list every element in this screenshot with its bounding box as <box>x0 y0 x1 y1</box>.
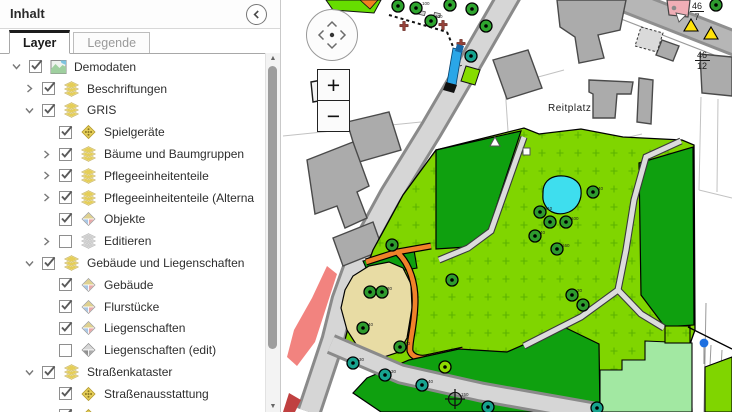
content-panel: Inhalt Layer Legende Demodaten Beschrift… <box>0 0 281 412</box>
chevron-right-icon[interactable] <box>36 147 56 161</box>
layer-label: Gebäude <box>104 278 153 292</box>
tree-row[interactable]: Pflegeeinheitenteile <box>0 165 266 187</box>
layer-checkbox[interactable] <box>42 257 55 270</box>
layer-checkbox[interactable] <box>59 300 72 313</box>
dense-green-right <box>639 147 694 327</box>
svg-text:30: 30 <box>359 357 365 362</box>
pan-down-icon[interactable] <box>328 44 337 49</box>
layer-checkbox[interactable] <box>59 322 72 335</box>
chevron-down-icon[interactable] <box>19 365 39 379</box>
tree-row[interactable]: Objekte <box>0 209 266 231</box>
red-sliver <box>283 393 301 412</box>
chevron-spacer <box>36 409 56 412</box>
layer-label: Liegenschaften (edit) <box>104 343 216 357</box>
chevron-right-icon[interactable] <box>36 169 56 183</box>
svg-text:30: 30 <box>387 286 393 291</box>
parcel-number: 46 <box>697 50 707 60</box>
polygon-layer-icon <box>78 299 98 315</box>
chevron-right-icon[interactable] <box>19 82 39 96</box>
map-label-reitplatz: Reitplatz <box>548 103 591 114</box>
layer-checkbox[interactable] <box>59 387 72 400</box>
blue-point <box>700 339 709 348</box>
layer-tree: Demodaten Beschriftungen GRISSpielgeräte… <box>0 53 266 412</box>
pan-right-icon[interactable] <box>341 31 346 40</box>
zoom-control: + − <box>317 69 350 132</box>
tab-legende[interactable]: Legende <box>73 32 150 53</box>
layer-checkbox[interactable] <box>59 169 72 182</box>
layer-label: GRIS <box>87 103 116 117</box>
svg-text:160: 160 <box>562 243 570 248</box>
scroll-down-arrow-icon[interactable]: ▼ <box>266 401 280 412</box>
pan-center-dot <box>330 33 334 37</box>
pan-control[interactable] <box>306 9 358 61</box>
layers-icon <box>78 168 98 184</box>
layer-checkbox[interactable] <box>59 344 72 357</box>
layer-label: Flurstücke <box>104 300 159 314</box>
fence-line <box>688 327 732 349</box>
tree-row[interactable]: Bäume und Baumgruppen <box>0 143 266 165</box>
layers-icon <box>61 102 81 118</box>
layer-checkbox[interactable] <box>29 60 42 73</box>
svg-text:30: 30 <box>391 369 397 374</box>
layer-label: Demodaten <box>74 60 136 74</box>
parcel-number: 7 <box>694 12 699 22</box>
tree-row[interactable]: Pflegeeinheitenteile (Alterna <box>0 187 266 209</box>
chevron-spacer <box>36 300 56 314</box>
layer-label: Pflegeeinheitenteile <box>104 169 209 183</box>
chevron-spacer <box>36 321 56 335</box>
layer-checkbox[interactable] <box>42 104 55 117</box>
point-layer-icon <box>78 408 98 412</box>
chevron-spacer <box>36 125 56 139</box>
polygon-layer-icon <box>78 277 98 293</box>
layers-icon <box>61 255 81 271</box>
layer-label: Gebäude und Liegenschaften <box>87 256 244 270</box>
svg-text:100: 100 <box>571 216 579 221</box>
svg-text:40: 40 <box>428 379 434 384</box>
tree-row[interactable] <box>0 405 266 412</box>
chevron-spacer <box>36 278 56 292</box>
chevron-right-icon[interactable] <box>36 234 56 248</box>
svg-text:100: 100 <box>435 14 443 19</box>
tree-row[interactable]: Editieren <box>0 230 266 252</box>
layer-checkbox[interactable] <box>59 148 72 161</box>
map-thumbnail-icon <box>48 59 68 75</box>
point-layer-icon <box>78 124 98 140</box>
tree-row[interactable]: Gebäude und Liegenschaften <box>0 252 266 274</box>
gis-application: Inhalt Layer Legende Demodaten Beschrift… <box>0 0 732 412</box>
zoom-out-button[interactable]: − <box>318 101 349 131</box>
pan-left-icon[interactable] <box>319 31 324 40</box>
polygon-layer-icon <box>78 320 98 336</box>
parcel-number: 46 <box>692 1 702 11</box>
tree-row[interactable]: Liegenschaften <box>0 318 266 340</box>
tree-row[interactable]: Liegenschaften (edit) <box>0 339 266 361</box>
layers-icon <box>78 146 98 162</box>
layer-label: Straßenausstattung <box>104 387 209 401</box>
point-layer-icon <box>78 386 98 402</box>
polygon-layer-icon <box>78 211 98 227</box>
lawn-right-bottom <box>705 357 732 412</box>
chevron-spacer <box>36 387 56 401</box>
svg-text:40: 40 <box>540 230 546 235</box>
chevron-down-icon[interactable] <box>6 60 26 74</box>
layers-gray-icon <box>78 233 98 249</box>
plus-square <box>665 326 690 343</box>
panel-tabs: Layer Legende <box>0 29 280 54</box>
layers-icon <box>78 190 98 206</box>
tree-row[interactable]: Straßenausstattung <box>0 383 266 405</box>
parcel-number: 12 <box>697 61 707 71</box>
chevron-spacer <box>36 212 56 226</box>
pan-up-icon[interactable] <box>328 22 337 27</box>
layer-label: Straßenkataster <box>87 365 172 379</box>
layer-checkbox[interactable] <box>59 191 72 204</box>
svg-text:100: 100 <box>422 1 430 6</box>
svg-text:30: 30 <box>405 341 411 346</box>
tab-layer[interactable]: Layer <box>9 30 70 54</box>
scroll-up-arrow-icon[interactable]: ▲ <box>266 53 280 64</box>
collapse-panel-button[interactable] <box>246 4 267 25</box>
layer-checkbox[interactable] <box>59 126 72 139</box>
layer-label: Bäume und Baumgruppen <box>104 147 244 161</box>
svg-text:110: 110 <box>545 206 553 211</box>
chevron-left-icon <box>250 8 263 21</box>
chevron-down-icon[interactable] <box>19 256 39 270</box>
tree-row[interactable]: Flurstücke <box>0 296 266 318</box>
layers-icon <box>61 81 81 97</box>
tree-row[interactable]: Gebäude <box>0 274 266 296</box>
svg-text:40: 40 <box>368 322 374 327</box>
layers-icon <box>61 364 81 380</box>
layer-label: Pflegeeinheitenteile (Alterna <box>104 191 254 205</box>
tree-row[interactable]: Beschriftungen <box>0 78 266 100</box>
panel-title: Inhalt <box>10 6 45 21</box>
tree-row[interactable]: GRIS <box>0 100 266 122</box>
polygon-layer-gray-icon <box>78 342 98 358</box>
layer-checkbox[interactable] <box>42 82 55 95</box>
svg-text:20: 20 <box>577 288 583 293</box>
panel-header: Inhalt <box>0 0 280 29</box>
svg-text:40: 40 <box>598 186 604 191</box>
layer-checkbox[interactable] <box>59 278 72 291</box>
layer-label: Beschriftungen <box>87 82 167 96</box>
layer-label: Liegenschaften <box>104 321 185 335</box>
scrollbar-thumb[interactable] <box>268 66 277 349</box>
chevron-right-icon[interactable] <box>36 191 56 205</box>
map-view[interactable]: Reitplatz 46 7 46 12 100 100 40 110 100 … <box>281 0 732 412</box>
layer-checkbox[interactable] <box>42 366 55 379</box>
tree-scrollbar: ▲ ▼ <box>265 53 280 412</box>
tree-row[interactable]: Demodaten <box>0 56 266 78</box>
chevron-spacer <box>36 343 56 357</box>
layer-checkbox[interactable] <box>59 235 72 248</box>
svg-text:150: 150 <box>461 392 469 397</box>
map-canvas[interactable]: Reitplatz 46 7 46 12 100 100 40 110 100 … <box>281 0 732 412</box>
tree-row[interactable]: Straßenkataster <box>0 361 266 383</box>
layer-label: Spielgeräte <box>104 125 165 139</box>
tree-row[interactable]: Spielgeräte <box>0 121 266 143</box>
layer-label: Editieren <box>104 234 151 248</box>
zoom-in-button[interactable]: + <box>318 70 349 101</box>
square-marker <box>523 148 530 155</box>
chevron-down-icon[interactable] <box>19 103 39 117</box>
layer-label: Objekte <box>104 212 145 226</box>
layer-checkbox[interactable] <box>59 213 72 226</box>
